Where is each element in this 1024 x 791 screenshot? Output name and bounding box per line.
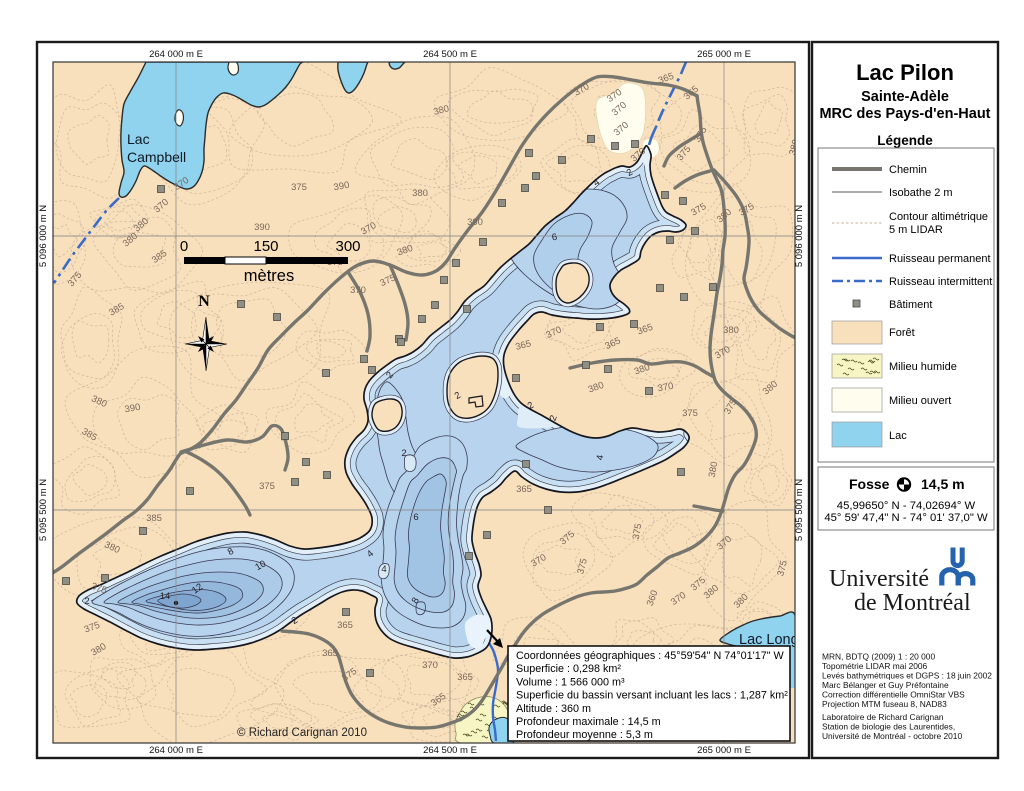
svg-text:Topométrie LIDAR mai 2006: Topométrie LIDAR mai 2006	[822, 661, 928, 671]
svg-text:2: 2	[401, 448, 406, 459]
svg-text:5 m LIDAR: 5 m LIDAR	[889, 224, 943, 236]
svg-text:Milieu ouvert: Milieu ouvert	[889, 395, 951, 407]
svg-text:5 095 500 m N: 5 095 500 m N	[38, 479, 49, 541]
svg-text:265 000 m E: 265 000 m E	[697, 745, 751, 756]
svg-text:5 095 500 m N: 5 095 500 m N	[794, 479, 805, 541]
svg-text:Correction différentielle Omni: Correction différentielle OmniStar VBS	[822, 690, 965, 700]
svg-text:2: 2	[84, 596, 89, 607]
svg-text:Profondeur maximale : 14,5 m: Profondeur maximale : 14,5 m	[516, 716, 661, 728]
svg-text:300: 300	[335, 238, 360, 255]
svg-text:Lac: Lac	[127, 131, 150, 147]
svg-text:4: 4	[381, 564, 386, 575]
svg-text:264 500 m E: 264 500 m E	[423, 745, 477, 756]
svg-text:Bâtiment: Bâtiment	[889, 299, 932, 311]
svg-text:Isobathe 2 m: Isobathe 2 m	[889, 187, 953, 199]
svg-text:Projection MTM fuseau 8, NAD83: Projection MTM fuseau 8, NAD83	[822, 699, 947, 709]
svg-text:Campbell: Campbell	[127, 149, 186, 165]
svg-text:375: 375	[682, 408, 698, 419]
svg-text:Sainte-Adèle: Sainte-Adèle	[861, 89, 949, 105]
svg-text:Milieu humide: Milieu humide	[889, 361, 957, 373]
svg-text:Université: Université	[829, 566, 929, 592]
svg-text:Forêt: Forêt	[889, 327, 915, 339]
svg-text:Profondeur moyenne : 5,3 m: Profondeur moyenne : 5,3 m	[516, 729, 653, 741]
svg-text:385: 385	[146, 513, 162, 524]
svg-text:Contour altimétrique: Contour altimétrique	[889, 211, 988, 223]
svg-text:Lac Pilon: Lac Pilon	[856, 60, 954, 85]
svg-text:375: 375	[259, 481, 275, 492]
svg-text:Station de biologie des Lauren: Station de biologie des Laurentides,	[822, 722, 955, 732]
svg-text:N: N	[198, 293, 210, 310]
svg-text:365: 365	[516, 484, 532, 495]
svg-text:45,99650° N - 74,02694° W: 45,99650° N - 74,02694° W	[837, 500, 976, 512]
svg-text:Légende: Légende	[877, 133, 933, 148]
svg-text:MRC des Pays-d'en-Haut: MRC des Pays-d'en-Haut	[819, 106, 990, 122]
svg-text:Lac: Lac	[889, 430, 907, 442]
svg-text:390: 390	[254, 222, 270, 233]
svg-text:150: 150	[253, 238, 278, 255]
svg-text:365: 365	[322, 648, 338, 659]
svg-text:Altitude : 360 m: Altitude : 360 m	[516, 703, 591, 715]
svg-text:MRN, BDTQ (2009) 1 : 20 000: MRN, BDTQ (2009) 1 : 20 000	[822, 652, 935, 662]
svg-text:380: 380	[723, 325, 739, 336]
svg-text:Université de Montréal - octob: Université de Montréal - octobre 2010	[822, 731, 962, 741]
svg-text:380: 380	[412, 188, 428, 199]
svg-text:Superficie : 0,298 km²: Superficie : 0,298 km²	[516, 663, 621, 675]
svg-text:365: 365	[457, 672, 473, 683]
svg-text:de Montréal: de Montréal	[854, 590, 971, 616]
svg-text:265 000 m E: 265 000 m E	[697, 49, 751, 60]
svg-text:365: 365	[337, 620, 353, 631]
svg-text:Ruisseau permanent: Ruisseau permanent	[889, 253, 991, 265]
svg-text:0: 0	[180, 238, 188, 255]
svg-text:370: 370	[350, 285, 366, 296]
svg-text:5 096 000 m N: 5 096 000 m N	[794, 205, 805, 267]
svg-text:45° 59' 47,4" N - 74° 01' 37,0: 45° 59' 47,4" N - 74° 01' 37,0" W	[824, 512, 988, 524]
svg-text:264 500 m E: 264 500 m E	[423, 49, 477, 60]
svg-text:Superficie du bassin versant i: Superficie du bassin versant incluant le…	[516, 690, 788, 702]
svg-text:375: 375	[291, 182, 307, 193]
svg-text:Chemin: Chemin	[889, 164, 927, 176]
svg-text:Levés bathymétriques et DGPS :: Levés bathymétriques et DGPS : 18 juin 2…	[822, 671, 992, 681]
svg-text:mètres: mètres	[244, 267, 294, 285]
svg-text:© Richard Carignan 2010: © Richard Carignan 2010	[237, 727, 367, 739]
svg-text:390: 390	[467, 217, 483, 228]
svg-text:5 096 000 m N: 5 096 000 m N	[38, 205, 49, 267]
svg-text:Marc Bélanger et Guy Préfontai: Marc Bélanger et Guy Préfontaine	[822, 680, 949, 690]
svg-text:264 000 m E: 264 000 m E	[149, 49, 203, 60]
svg-text:14,5 m: 14,5 m	[921, 476, 965, 492]
svg-text:Fosse: Fosse	[849, 476, 890, 492]
svg-text:6: 6	[413, 512, 418, 523]
svg-text:Laboratoire de Richard Carigna: Laboratoire de Richard Carignan	[822, 712, 944, 722]
svg-text:264 000 m E: 264 000 m E	[149, 745, 203, 756]
svg-text:Volume : 1 566 000 m³: Volume : 1 566 000 m³	[516, 676, 625, 688]
svg-text:Coordonnées géographiques : 45: Coordonnées géographiques : 45°59'54" N …	[516, 650, 785, 662]
svg-text:370: 370	[422, 660, 438, 671]
svg-text:14: 14	[160, 591, 171, 602]
svg-text:Ruisseau intermittent: Ruisseau intermittent	[889, 276, 992, 288]
